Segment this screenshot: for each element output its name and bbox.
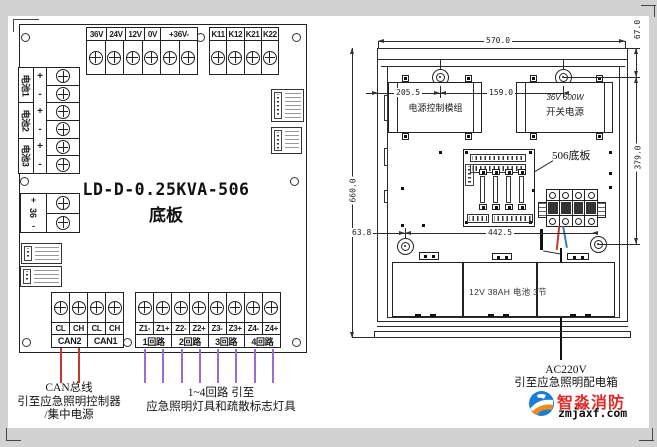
panel-dot	[609, 151, 612, 154]
terminal-block-relay: K11 K12 K21 K22	[209, 27, 279, 75]
dim-height: 660.0	[349, 176, 358, 204]
terminal-label: Z2-	[171, 323, 189, 334]
dimension-arrow	[378, 39, 384, 43]
screw-terminal	[47, 156, 79, 173]
pcb-pad	[492, 169, 500, 175]
mounting-hole	[20, 177, 29, 186]
pcb-terminal-strip	[492, 214, 533, 223]
panel-dot	[439, 151, 442, 154]
battery-label: 电池3	[20, 145, 33, 167]
circuit-wire	[162, 349, 164, 383]
dim-63: 63.8	[350, 228, 373, 237]
dimension-arrow	[434, 91, 440, 95]
polarity-sign: -	[34, 156, 46, 174]
mounting-hole	[21, 33, 30, 42]
terminal-label: Z4-	[244, 323, 262, 334]
dimension-arrow	[592, 231, 598, 235]
datum-line	[563, 77, 640, 78]
can-terminal-block: CL CH CL CH CAN2 CAN1	[51, 292, 124, 348]
crop-mark-bottom-left	[6, 440, 21, 441]
terminal-label: K12	[226, 28, 243, 40]
cable-gland	[397, 238, 414, 255]
polarity-sign: +	[34, 103, 46, 121]
pcb-slot	[493, 176, 498, 203]
can-annotation-line3: /集中电源	[8, 409, 130, 423]
power-control-module-label: 电源控制模组	[398, 101, 473, 114]
dim-205: 205.5	[394, 88, 422, 97]
screw-terminal	[105, 293, 123, 322]
circuit-annotation: 1~4回路 引至 应急照明灯具和疏散标志灯具	[128, 387, 314, 414]
battery-label: 电池2	[20, 109, 33, 131]
connector-header	[21, 243, 62, 264]
can-port-label: CAN2	[52, 335, 87, 347]
pcb-slot	[506, 176, 511, 203]
can-wire	[60, 348, 62, 383]
pcb-pad	[492, 204, 500, 210]
terminal-label: Z1+	[153, 323, 171, 334]
screw-terminal	[47, 139, 79, 157]
can-annotation: CAN总线 引至应急照明控制器 /集中电源	[8, 382, 130, 423]
panel-dot	[532, 189, 535, 192]
breaker-pole	[584, 189, 598, 227]
panel-dot	[422, 224, 425, 227]
pcb-slot	[480, 176, 485, 203]
mounting-hole	[22, 338, 31, 347]
terminal-label: Z2+	[189, 323, 207, 334]
dimension-arrow	[399, 231, 405, 235]
battery-link-tab	[567, 253, 589, 260]
mounting-hole	[292, 33, 301, 42]
module-foot	[402, 75, 409, 82]
datum-line	[598, 244, 640, 245]
circuit-wire	[272, 349, 274, 383]
crop-mark-top-left	[13, 19, 14, 32]
screw-terminal	[189, 293, 207, 322]
terminal-label: CH	[105, 323, 123, 334]
pcb-corner-dot	[465, 151, 468, 154]
terminal-label: +36V-	[160, 28, 197, 40]
terminal-label: 36V	[87, 28, 106, 40]
dim-panel-height: 379.0	[634, 143, 643, 171]
breaker-pole	[572, 189, 586, 227]
breaker-pole	[546, 189, 560, 227]
dim-159: 159.0	[487, 88, 515, 97]
polarity-sign: +	[31, 195, 36, 205]
battery-foot	[488, 314, 494, 317]
screw-terminal	[160, 41, 179, 74]
battery-foot	[570, 314, 576, 317]
screw-terminal	[179, 41, 198, 74]
mounting-hole	[290, 177, 299, 186]
circuit-wire	[254, 349, 256, 383]
module-foot	[530, 75, 537, 82]
pcb-callout-label: 506底板	[552, 147, 591, 163]
terminal-label: 24V	[106, 28, 125, 40]
pcb-pad	[518, 169, 526, 175]
screw-terminal	[208, 293, 226, 322]
battery-spec-label: 12V 38AH 电池 3节	[452, 286, 564, 298]
battery-foot	[430, 314, 436, 317]
extension-line	[352, 337, 374, 338]
module-foot	[465, 133, 472, 140]
battery-link-tab	[492, 253, 512, 260]
dimension-arrow	[440, 91, 446, 95]
hinge	[384, 190, 388, 203]
screw-terminal	[136, 293, 153, 322]
vendor-logo-icon	[528, 390, 555, 417]
dimension-arrow	[619, 39, 625, 43]
terminal-block-voltage: 36V 24V 12V 0V +36V-	[86, 27, 198, 75]
screw-terminal	[171, 293, 189, 322]
screw-terminal	[123, 41, 142, 74]
polarity-sign: -	[34, 121, 46, 139]
terminal-label: Z1-	[136, 323, 153, 334]
vendor-site-text: zmjaxf.com	[558, 406, 627, 420]
circuit-wire	[199, 349, 201, 383]
can-port-label: CAN1	[87, 335, 123, 347]
screw-terminal	[47, 68, 79, 86]
terminal-label: K21	[244, 28, 261, 40]
crop-mark-top-left	[13, 19, 39, 20]
din-rail-tab	[597, 202, 606, 218]
terminal-label: 0V	[144, 28, 160, 40]
panel-dot	[401, 224, 404, 227]
terminal-label: 12V	[125, 28, 144, 40]
dimension-arrow	[634, 77, 638, 83]
dimension-arrow	[372, 91, 378, 95]
terminal-label: K22	[261, 28, 278, 40]
hinge	[384, 148, 388, 166]
terminal-label: Z4+	[262, 323, 280, 334]
screw-terminal	[52, 293, 69, 322]
mounting-hole	[123, 338, 132, 347]
crop-mark-bottom-left	[6, 428, 7, 441]
polarity-sign: -	[32, 221, 35, 231]
circuit-wire	[144, 349, 146, 383]
circuit-breaker	[546, 189, 598, 227]
breaker-pole	[559, 189, 573, 227]
dimension-arrow	[350, 48, 354, 54]
pcb-pad	[479, 169, 487, 175]
screw-terminal	[244, 293, 262, 322]
knob-tick	[563, 60, 564, 69]
dimension-arrow	[405, 231, 411, 235]
terminal-label: K11	[210, 28, 226, 40]
connector-header	[20, 266, 62, 287]
battery-terminal-block: 电池1 电池2 电池3 + - + - + -	[18, 67, 80, 174]
circuit-wire	[217, 349, 219, 383]
extension-line	[625, 41, 626, 49]
pcb-pad	[505, 204, 513, 210]
battery-foot	[415, 314, 421, 317]
pcb-pad	[505, 169, 513, 175]
module-foot	[596, 133, 603, 140]
pcb-terminal-strip	[470, 154, 526, 162]
panel-dot	[609, 186, 612, 189]
pcb-corner-dot	[529, 151, 532, 154]
panel-dot	[609, 172, 612, 175]
mounting-hole	[292, 338, 301, 347]
screw-terminal	[47, 214, 79, 233]
screw-terminal	[262, 293, 280, 322]
dim-width: 570.0	[484, 36, 512, 45]
screw-terminal	[47, 103, 79, 121]
battery-foot	[585, 314, 591, 317]
circuit-annotation-line1: 1~4回路 引至	[128, 387, 314, 401]
module-foot	[402, 133, 409, 140]
pcb-pad	[479, 204, 487, 210]
circuit-label: 2回路	[171, 335, 207, 347]
module-flange	[473, 83, 474, 132]
screw-terminal	[69, 293, 87, 322]
can-annotation-line2: 引至应急照明控制器	[8, 396, 130, 410]
terminal-label: Z3+	[226, 323, 244, 334]
screw-terminal	[87, 41, 105, 74]
circuit-label: 4回路	[244, 335, 280, 347]
crop-mark-bottom-right	[652, 428, 653, 441]
screw-terminal	[226, 293, 244, 322]
module-foot	[465, 75, 472, 82]
board-title: LD-D-0.25KVA-506	[60, 180, 272, 199]
pcb-slot	[519, 176, 524, 203]
pcb-terminal-strip	[467, 214, 489, 223]
circuit-label: 3回路	[208, 335, 244, 347]
polarity-sign: +	[34, 138, 46, 156]
cabinet-base	[374, 331, 631, 338]
polarity-sign: +	[34, 68, 46, 86]
screw-terminal	[226, 41, 243, 74]
dimension-arrow	[634, 238, 638, 244]
circuit-annotation-line2: 应急照明灯具和疏散标志灯具	[128, 401, 314, 415]
terminal-label: CL	[87, 323, 105, 334]
output-36v-block: + 36 -	[20, 193, 80, 233]
dim-top-offset: 67.0	[633, 18, 642, 41]
battery-link-tab	[419, 252, 439, 260]
terminal-label: CL	[52, 323, 69, 334]
cabinet-top-rail	[377, 59, 628, 60]
circuit-terminal-block: Z1- Z1+ Z2- Z2+ Z3- Z3+ Z4- Z4+ 1回路 2回路 …	[135, 292, 281, 348]
circuit-label: 1回路	[136, 335, 171, 347]
board-subtitle: 底板	[60, 201, 272, 226]
screw-terminal	[244, 41, 261, 74]
dimension-arrow	[634, 48, 638, 54]
module-flange	[604, 83, 605, 132]
terminal-label: CH	[69, 323, 87, 334]
can-annotation-line1: CAN总线	[8, 382, 130, 396]
pcb-connector	[465, 164, 474, 186]
can-wire	[78, 348, 80, 383]
circuit-wire	[181, 349, 183, 383]
dim-442: 442.5	[486, 228, 514, 237]
terminal-label: Z3-	[208, 323, 226, 334]
screw-terminal	[142, 41, 161, 74]
screw-terminal	[47, 194, 79, 214]
screw-terminal	[153, 293, 171, 322]
ac-annotation: AC220V 引至应急照明配电箱	[502, 364, 630, 390]
knob-tick	[440, 60, 441, 69]
connector-header	[271, 127, 302, 154]
crop-mark-top-right	[654, 5, 655, 17]
dimension-arrow	[563, 91, 569, 95]
screw-terminal	[47, 86, 79, 104]
screw-terminal	[47, 121, 79, 139]
screw-terminal	[105, 41, 124, 74]
psu-name-label: 开关电源	[526, 104, 604, 118]
screw-terminal	[210, 41, 226, 74]
ac-annotation-line1: AC220V	[502, 364, 630, 377]
battery-label: 电池1	[20, 74, 33, 96]
connector-header	[271, 89, 304, 122]
battery-foot	[503, 314, 509, 317]
module-foot	[530, 133, 537, 140]
circuit-wire	[235, 349, 237, 383]
diagram-page: 36V 24V 12V 0V +36V- K11 K12 K21 K22	[0, 0, 657, 447]
screw-terminal	[87, 293, 105, 322]
polarity-sign: -	[34, 86, 46, 104]
screw-terminal	[261, 41, 278, 74]
panel-dot	[401, 187, 404, 190]
cabinet-bottom-rail	[377, 326, 628, 327]
output-voltage-label: 36	[28, 208, 38, 218]
pcb-pad	[518, 204, 526, 210]
